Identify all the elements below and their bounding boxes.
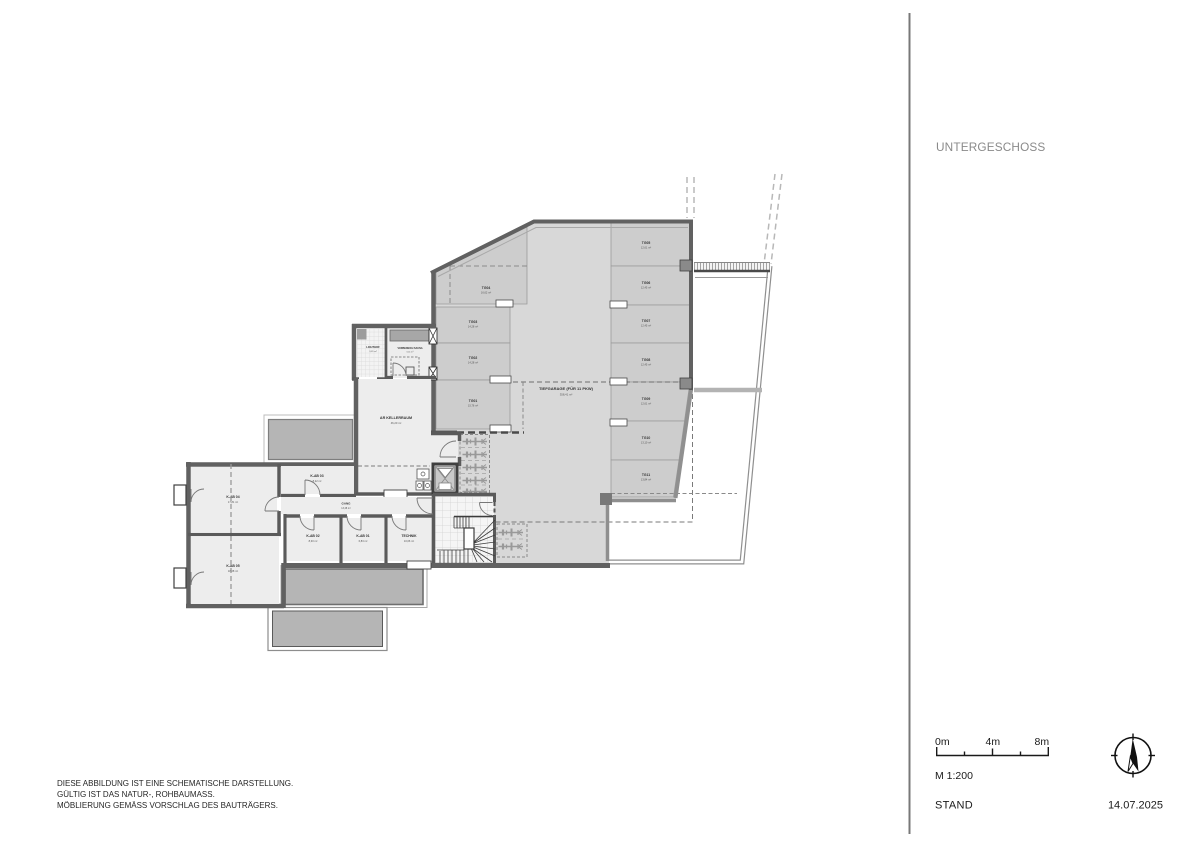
svg-text:12,45 m²: 12,45 m² xyxy=(641,324,651,328)
svg-text:K-AB 01: K-AB 01 xyxy=(356,534,369,538)
svg-text:K-AB 03: K-AB 03 xyxy=(310,474,323,478)
svg-text:TG10: TG10 xyxy=(642,436,651,440)
svg-text:358,41 m²: 358,41 m² xyxy=(560,393,573,397)
svg-text:TG05: TG05 xyxy=(642,241,651,245)
svg-text:VORBEREICH SAUNA: VORBEREICH SAUNA xyxy=(397,347,422,350)
svg-text:8m: 8m xyxy=(1035,736,1050,748)
svg-text:13,10 m²: 13,10 m² xyxy=(641,441,651,445)
svg-text:18,28 m²: 18,28 m² xyxy=(228,569,238,573)
svg-text:16,62 m²: 16,62 m² xyxy=(481,291,491,295)
svg-text:46,20 m²: 46,20 m² xyxy=(391,421,402,425)
svg-text:12,61 m²: 12,61 m² xyxy=(641,402,651,406)
svg-text:GANG: GANG xyxy=(342,502,352,506)
svg-text:DIESE ABBILDUNG IST EINE SCHEM: DIESE ABBILDUNG IST EINE SCHEMATISCHE DA… xyxy=(57,779,293,788)
svg-text:LICHTHOF: LICHTHOF xyxy=(366,345,380,349)
svg-text:MÖBLIERUNG GEMÄSS VORSCHLAG DE: MÖBLIERUNG GEMÄSS VORSCHLAG DES BAUTRÄGE… xyxy=(57,801,278,810)
svg-text:TG01: TG01 xyxy=(469,399,478,403)
svg-text:TG07: TG07 xyxy=(642,319,651,323)
svg-text:3,81 m²: 3,81 m² xyxy=(369,350,377,353)
svg-text:GÜLTIG IST DAS NATUR-, ROHBAUM: GÜLTIG IST DAS NATUR-, ROHBAUMASS. xyxy=(57,790,215,799)
svg-text:13,84 m²: 13,84 m² xyxy=(641,478,651,482)
svg-text:STAND: STAND xyxy=(935,800,973,812)
svg-text:TECHNIK: TECHNIK xyxy=(401,534,417,538)
svg-text:TG06: TG06 xyxy=(642,281,651,285)
svg-text:6,83 m²: 6,83 m² xyxy=(359,539,368,543)
svg-text:K-AB 04: K-AB 04 xyxy=(226,495,239,499)
svg-text:15,76 m²: 15,76 m² xyxy=(468,404,478,408)
svg-text:17,81 m²: 17,81 m² xyxy=(228,500,238,504)
svg-text:TG02: TG02 xyxy=(469,356,478,360)
svg-text:4m: 4m xyxy=(986,736,1001,748)
svg-text:0m: 0m xyxy=(935,736,950,748)
svg-text:TG08: TG08 xyxy=(642,358,651,362)
svg-text:12,45 m²: 12,45 m² xyxy=(641,286,651,290)
svg-text:12,45 m²: 12,45 m² xyxy=(641,363,651,367)
svg-text:TIEFGARAGE (FÜR 11 PKW): TIEFGARAGE (FÜR 11 PKW) xyxy=(539,386,594,391)
svg-text:13,28 m²: 13,28 m² xyxy=(341,507,351,510)
svg-text:14.07.2025: 14.07.2025 xyxy=(1108,800,1163,812)
svg-text:AR KELLERRAUM: AR KELLERRAUM xyxy=(380,416,412,420)
svg-text:14,28 m²: 14,28 m² xyxy=(468,361,478,365)
svg-text:TG11: TG11 xyxy=(642,473,650,477)
svg-text:K-AB 02: K-AB 02 xyxy=(306,534,319,538)
svg-text:UNTERGESCHOSS: UNTERGESCHOSS xyxy=(936,140,1045,154)
svg-text:10,06 m²: 10,06 m² xyxy=(404,539,414,543)
svg-text:14,28 m²: 14,28 m² xyxy=(468,325,478,329)
svg-text:TG09: TG09 xyxy=(642,397,651,401)
svg-text:TG04: TG04 xyxy=(482,286,491,290)
svg-text:6,51 m²: 6,51 m² xyxy=(407,351,414,354)
svg-text:8,30 m²: 8,30 m² xyxy=(309,539,318,543)
svg-text:K-AB 05: K-AB 05 xyxy=(226,564,239,568)
svg-text:TG03: TG03 xyxy=(469,320,478,324)
svg-text:M 1:200: M 1:200 xyxy=(935,770,973,782)
svg-text:12,61 m²: 12,61 m² xyxy=(641,246,651,250)
